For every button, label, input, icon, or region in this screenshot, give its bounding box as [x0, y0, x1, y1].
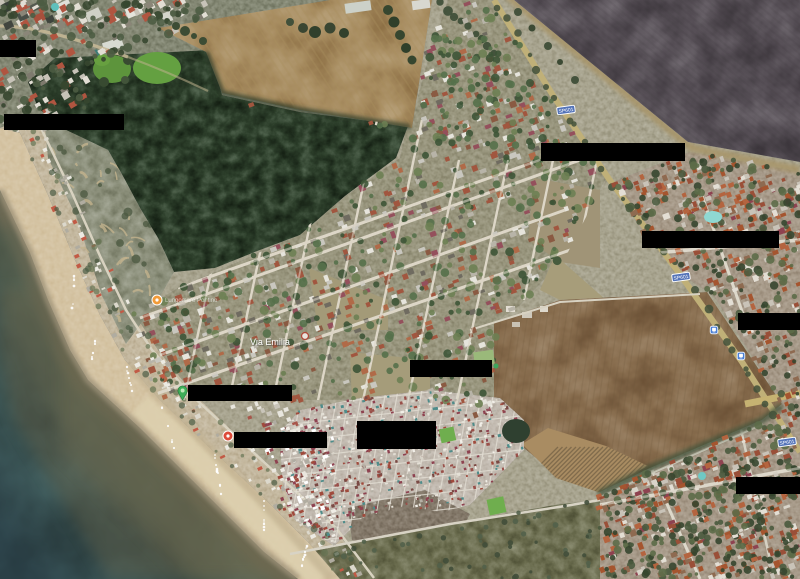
- svg-text:Lungomare Pontino: Lungomare Pontino: [165, 298, 218, 304]
- svg-text:Via Emilia: Via Emilia: [250, 337, 290, 347]
